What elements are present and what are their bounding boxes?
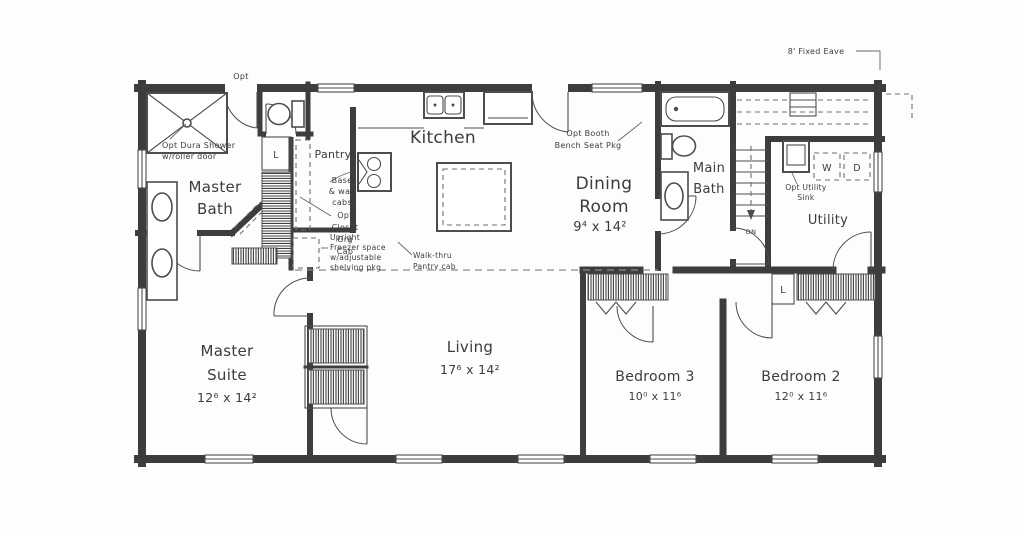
window xyxy=(396,455,442,463)
master-suite-closet xyxy=(305,326,367,408)
closet-org-1: Opt xyxy=(337,211,352,220)
door-bedroom2 xyxy=(736,302,772,338)
living-label: Living xyxy=(447,338,493,356)
pantry-cabs-3: cabs xyxy=(332,198,352,207)
bedroom3-closet xyxy=(588,274,668,314)
linen-master-label: L xyxy=(273,150,279,161)
window xyxy=(205,455,253,463)
shower-note-line2: w/roller door xyxy=(162,152,217,161)
utility-sink-note-2: Sink xyxy=(797,193,814,202)
tub-icon xyxy=(661,92,729,126)
toilet-icon xyxy=(661,134,696,159)
living-dims: 17⁶ x 14² xyxy=(440,362,500,377)
floor-plan-page: 8' Fixed Eave Opt Opt Dura Shower w/roll… xyxy=(0,0,1024,536)
vanity-icon xyxy=(661,172,688,220)
pantry-cabs-1: Base xyxy=(332,176,353,185)
dryer-label: D xyxy=(853,163,861,174)
master-suite-dims: 12⁶ x 14² xyxy=(197,390,257,405)
utility-fixtures xyxy=(783,141,870,180)
master-bath-fixtures xyxy=(147,93,304,300)
freezer-note-3: w/adjustable xyxy=(330,253,381,262)
bedroom-closets xyxy=(305,274,875,408)
main-bath-label-2: Bath xyxy=(693,182,724,197)
kitchen-fixtures xyxy=(293,92,532,268)
refrigerator-icon xyxy=(484,92,532,124)
fixed-eave-label: 8' Fixed Eave xyxy=(788,47,845,56)
dining-dims: 9⁴ x 14² xyxy=(573,220,627,235)
door-kitchen-dining xyxy=(532,83,568,132)
range-icon xyxy=(358,153,391,191)
freezer-note-2: Freezer space xyxy=(330,243,386,252)
dining-label-2: Room xyxy=(579,197,629,217)
bedroom3-label: Bedroom 3 xyxy=(615,369,694,385)
bedroom2-dims: 12⁰ x 11⁶ xyxy=(774,390,827,403)
utility-label: Utility xyxy=(808,213,848,228)
opt-door-label: Opt xyxy=(233,72,248,81)
bedroom3-dims: 10⁰ x 11⁶ xyxy=(628,390,681,403)
window xyxy=(772,455,818,463)
freezer-space-box xyxy=(293,238,319,268)
window xyxy=(518,455,564,463)
window xyxy=(138,288,146,330)
window xyxy=(138,150,146,188)
door-suite-closet xyxy=(331,408,367,444)
door-opt-entry xyxy=(225,83,257,128)
dining-label-1: Dining xyxy=(576,174,633,194)
window xyxy=(874,152,882,192)
door-master-suite xyxy=(274,278,310,316)
walkthru-note-1: Walk-thru xyxy=(413,251,452,260)
kitchen-label: Kitchen xyxy=(410,128,476,148)
pantry-label: Pantry xyxy=(315,148,352,161)
window xyxy=(874,336,882,378)
floor-plan-svg: 8' Fixed Eave Opt Opt Dura Shower w/roll… xyxy=(0,0,1024,536)
main-bath-fixtures xyxy=(661,92,729,220)
washer-label: W xyxy=(822,163,832,174)
stair-landing xyxy=(737,93,868,124)
closet-org-2: Closet xyxy=(332,223,359,232)
kitchen-island xyxy=(437,163,511,231)
master-suite-label-1: Master xyxy=(200,342,254,360)
freezer-note-1: Upright xyxy=(330,233,360,242)
kitchen-sink-icon xyxy=(424,92,464,118)
door-bedroom3 xyxy=(617,306,653,342)
door-utility xyxy=(833,232,871,270)
main-bath-label-1: Main xyxy=(693,161,725,176)
master-suite-label-2: Suite xyxy=(207,366,247,384)
master-bath-label-1: Master xyxy=(188,178,242,196)
booth-note-2: Bench Seat Pkg xyxy=(555,141,622,150)
freezer-note-4: shelving pkg xyxy=(330,263,381,272)
shower-note-line1: Opt Dura Shower xyxy=(162,141,236,150)
pantry-cabs-2: & wall xyxy=(329,187,355,196)
window xyxy=(650,455,696,463)
booth-note-1: Opt Booth xyxy=(566,129,609,138)
bedroom2-label: Bedroom 2 xyxy=(761,369,840,385)
utility-sink-note-1: Opt Utility xyxy=(785,183,827,192)
window xyxy=(592,84,642,92)
linen-hall-label: L xyxy=(780,285,786,296)
master-bath-label-2: Bath xyxy=(197,200,233,218)
double-vanity-icon xyxy=(147,182,177,300)
walkthru-note-2: Pantry cab xyxy=(413,262,456,271)
bedroom2-closet xyxy=(797,274,875,314)
stairs-dn-label: DN xyxy=(746,228,756,236)
utility-sink-icon xyxy=(783,141,809,172)
window xyxy=(318,84,354,92)
eave-overhang-line xyxy=(886,94,912,122)
toilet-icon xyxy=(268,101,304,127)
